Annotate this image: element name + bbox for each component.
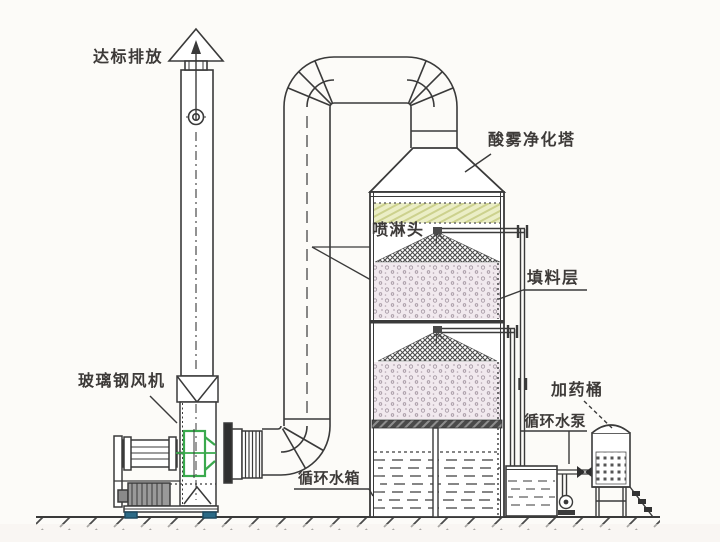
barrel-stand xyxy=(592,487,630,516)
label-circulating-pump: 循环水泵 xyxy=(524,414,586,429)
exhaust-stack xyxy=(169,29,223,376)
page-edge-shading xyxy=(0,524,720,542)
tower-cone xyxy=(370,148,504,192)
fan-leader xyxy=(150,396,177,423)
circulating-pump xyxy=(558,474,575,515)
label-frp-fan: 玻璃钢风机 xyxy=(78,374,166,390)
access-steps xyxy=(630,487,653,517)
chemical-fill xyxy=(596,452,626,484)
frp-fan xyxy=(114,376,262,518)
label-circulating-tank: 循环水箱 xyxy=(298,471,360,486)
schematic-drawing xyxy=(0,0,720,542)
packing-support xyxy=(372,420,502,428)
barrel-leader xyxy=(584,401,612,428)
label-spray-head: 喷淋头 xyxy=(372,223,425,239)
demister-band xyxy=(374,203,500,223)
fan-motor xyxy=(114,436,185,507)
inlet-flange xyxy=(224,423,232,483)
pump-tank-group xyxy=(506,466,594,516)
circulation-pipes xyxy=(508,225,527,504)
flex-connector xyxy=(242,431,262,478)
diagram-canvas: 达标排放 酸雾净化塔 喷淋头 填料层 玻璃钢风机 循环水箱 循环水泵 加药桶 xyxy=(0,0,720,542)
dosing-barrel xyxy=(592,425,653,517)
packing-layer-lower xyxy=(374,362,500,419)
label-dosing-barrel: 加药桶 xyxy=(551,383,604,399)
label-emission: 达标排放 xyxy=(93,50,163,66)
label-tower: 酸雾净化塔 xyxy=(488,133,576,149)
tank-divider xyxy=(433,428,438,517)
label-packing-layer: 填料层 xyxy=(527,271,580,287)
packing-layer-upper xyxy=(374,263,500,319)
